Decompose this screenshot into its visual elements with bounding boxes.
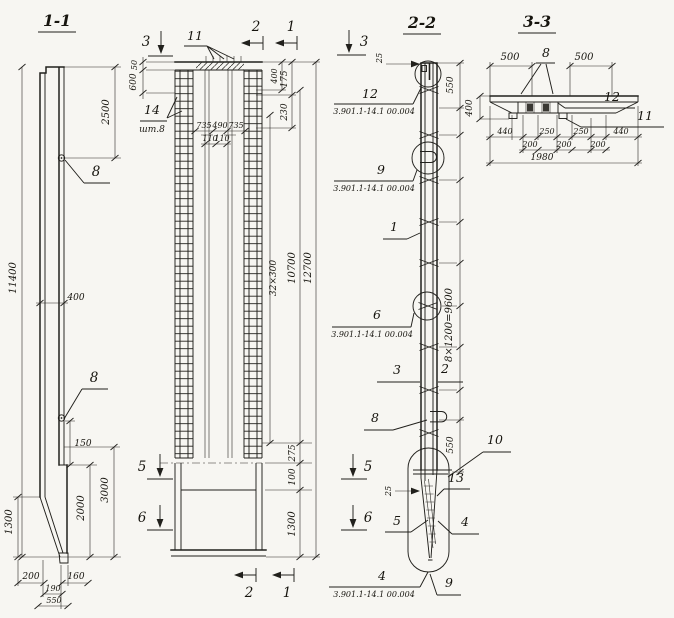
section-marks-2-2: 3 5 6	[337, 30, 373, 530]
dim-200-a: 200	[521, 140, 537, 149]
view-1-1: 11400 2500 400 150 3000 2000 1300 200 16…	[4, 64, 121, 609]
dim-110-right: 110	[214, 134, 229, 143]
dim-250-right: 250	[572, 127, 588, 136]
dim-400-cap: 400	[465, 99, 475, 117]
callout-4-bottom-doc: 3.901.1-14.1 00.004	[333, 590, 415, 599]
callout-9-bottom: 9	[445, 575, 453, 590]
callouts-3-3: 12 11	[558, 89, 664, 127]
section-mark-6-right: 6	[364, 510, 373, 526]
column-outline-1-1	[40, 67, 68, 563]
section-mark-1-bottom: 1	[283, 585, 292, 601]
dim-32x300: 32×300	[269, 260, 279, 296]
section-mark-3: 3	[142, 34, 151, 50]
view-3-3: 500 500 8 12 11 400 440 250 250 440	[465, 45, 664, 166]
dim-735-left: 735	[196, 121, 211, 130]
dim-1980-total: 1980	[531, 153, 554, 163]
dim-150: 150	[74, 439, 91, 449]
callout-3: 3	[393, 362, 401, 377]
dimensions-main-right: 400 175 230 32×300 10700 275 100 1300 12…	[256, 59, 320, 560]
dim-160: 160	[67, 572, 84, 582]
dim-total-height: 11400	[8, 261, 19, 293]
section-mark-2-bottom: 2	[244, 585, 254, 601]
dim-100: 100	[288, 468, 298, 485]
callout-8-cap: 8	[542, 45, 550, 60]
dim-250-left: 250	[538, 127, 554, 136]
callouts-1-1: 8 8	[64, 160, 110, 419]
callout-11-group: 11	[184, 28, 234, 59]
dim-25-bottom: 25	[384, 486, 393, 497]
dim-230: 230	[280, 103, 290, 121]
callout-5: 5	[393, 513, 401, 528]
dim-400-top: 400	[270, 68, 279, 84]
dimensions-main-left: 50 600	[129, 57, 175, 99]
callout-12-cap: 12	[604, 89, 620, 104]
dim-width-400: 400	[66, 293, 84, 303]
dim-440-right: 440	[612, 127, 628, 136]
view-main-elevation: 50 600 11 14 шт.8 735 490 735 110 110 40…	[129, 19, 320, 601]
left-bolt-tab	[509, 113, 517, 119]
view-2-2: 550 8×1200=9600 550 25 25 12 3.901.1-14.…	[329, 30, 511, 599]
callout-loop-8-top: 8	[92, 164, 101, 180]
dim-8x1200: 8×1200=9600	[444, 287, 455, 362]
section-mark-5-right: 5	[364, 459, 373, 475]
callout-1: 1	[390, 219, 398, 234]
dim-2000: 2000	[76, 495, 87, 522]
callout-4-bottom: 4	[377, 568, 386, 583]
dim-top-to-loop: 2500	[101, 99, 112, 126]
dim-735-right: 735	[228, 121, 243, 130]
dimensions-3-3-top: 500 500 8	[487, 45, 616, 96]
dim-10700: 10700	[287, 251, 298, 283]
callout-9: 9	[377, 162, 385, 177]
dim-200-b: 200	[555, 140, 571, 149]
callout-2: 2	[440, 361, 449, 376]
callout-6: 6	[373, 307, 381, 322]
dim-600: 600	[129, 73, 139, 90]
dimensions-main-inner: 735 490 735 110 110	[192, 121, 249, 147]
center-joint-detail	[518, 102, 558, 113]
dim-440-left: 440	[496, 127, 512, 136]
left-rebar-ladder	[175, 70, 193, 458]
dim-1300: 1300	[4, 509, 15, 535]
title-section-3-3: 3-3	[523, 12, 551, 31]
engineering-drawing: 1-1 2-2 3-3 11400 2500 400 150	[0, 0, 674, 618]
dim-25-top: 25	[375, 53, 384, 64]
callout-13: 13	[448, 470, 464, 485]
title-section-2-2: 2-2	[407, 13, 436, 32]
dim-550: 550	[46, 596, 61, 605]
top-hatch-band	[196, 63, 244, 70]
title-section-1-1: 1-1	[43, 11, 71, 30]
callout-14: 14	[144, 102, 160, 117]
dim-50: 50	[130, 60, 139, 70]
dim-175: 175	[280, 70, 290, 87]
callout-loop-8-bottom: 8	[90, 370, 99, 386]
callout-12: 12	[362, 86, 378, 101]
section-mark-6-left: 6	[138, 510, 147, 526]
callout-6-doc: 3.901.1-14.1 00.004	[331, 330, 413, 339]
section-mark-2-top: 2	[251, 19, 261, 35]
section-mark-5-left: 5	[138, 459, 147, 475]
section-titles: 1-1 2-2 3-3	[38, 11, 556, 34]
head-anchor-detail	[422, 66, 427, 72]
dim-200-c: 200	[589, 140, 605, 149]
dim-500-right: 500	[574, 52, 594, 63]
dim-190: 190	[45, 584, 60, 593]
callout-8: 8	[371, 410, 379, 425]
dim-550-top: 550	[446, 76, 456, 93]
dim-200: 200	[21, 572, 39, 582]
section-mark-1-top: 1	[287, 19, 296, 35]
callout-10: 10	[487, 432, 503, 447]
dim-500-left: 500	[500, 52, 520, 63]
callout-12-doc: 3.901.1-14.1 00.004	[333, 107, 415, 116]
section-marks-main: 3 2 1 5 6 2 1	[138, 19, 297, 601]
dimensions-1-1: 11400 2500 400 150 3000 2000 1300 200 16…	[4, 64, 119, 609]
dim-550-bottom: 550	[446, 436, 456, 453]
embedded-loop-detail	[420, 152, 437, 163]
callout-11-cap: 11	[637, 108, 653, 123]
callout-4: 4	[460, 514, 469, 529]
dim-275: 275	[288, 444, 298, 462]
dim-1300-bottom: 1300	[287, 511, 298, 537]
callout-11: 11	[187, 28, 203, 43]
dimensions-3-3-left: 400	[465, 93, 509, 122]
dim-12700: 12700	[303, 251, 314, 283]
dim-490: 490	[211, 121, 227, 130]
dim-3000: 3000	[100, 477, 111, 503]
detail-circle-upper	[412, 142, 444, 174]
lifting-loop-2-2	[430, 412, 447, 422]
section-mark-3-right: 3	[360, 34, 369, 50]
right-bolt-tab	[559, 113, 567, 119]
drawing-sheet: 1-1 2-2 3-3 11400 2500 400 150	[0, 0, 674, 618]
callout-14-qty: шт.8	[139, 125, 165, 135]
callout-9-doc: 3.901.1-14.1 00.004	[333, 184, 415, 193]
